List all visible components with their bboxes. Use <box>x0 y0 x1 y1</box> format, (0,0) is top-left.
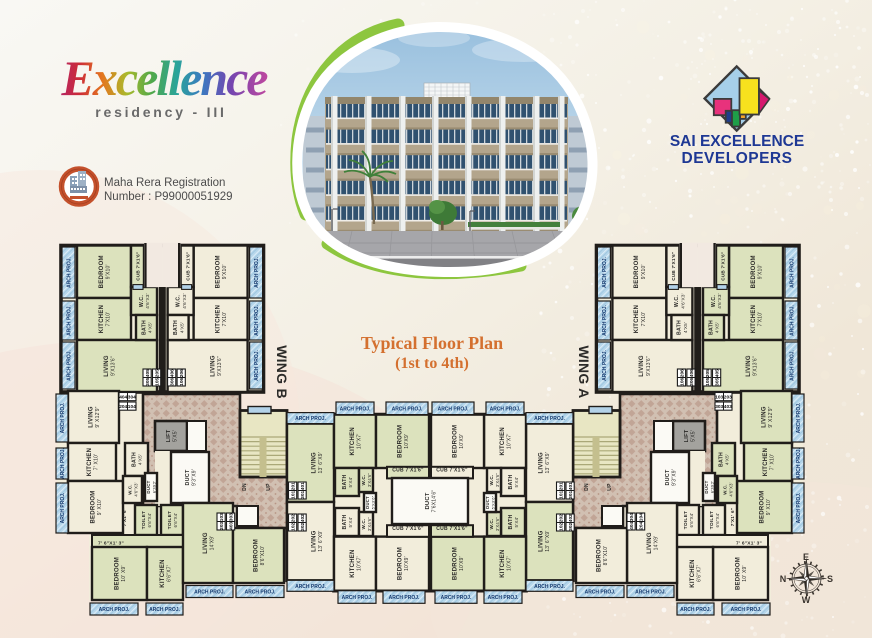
svg-text:405: 405 <box>145 369 151 377</box>
svg-text:KITCHEN: KITCHEN <box>350 549 356 577</box>
svg-text:4'X5': 4'X5' <box>683 322 688 333</box>
svg-text:102: 102 <box>559 522 565 530</box>
svg-text:Excellence: Excellence <box>61 50 269 106</box>
svg-text:W.C.: W.C. <box>722 484 727 495</box>
svg-text:9'X10': 9'X10' <box>641 264 647 279</box>
svg-text:W.C.: W.C. <box>489 475 494 486</box>
svg-text:204: 204 <box>639 521 645 529</box>
svg-text:KITCHEN: KITCHEN <box>634 305 640 333</box>
svg-text:ARCH PROJ.: ARCH PROJ. <box>488 595 519 601</box>
svg-text:4'6"X3': 4'6"X3' <box>133 482 138 496</box>
svg-text:BEDROOM: BEDROOM <box>215 255 221 288</box>
svg-text:ARCH PROJ.: ARCH PROJ. <box>99 607 130 613</box>
svg-text:102: 102 <box>291 522 297 530</box>
svg-text:ARCH PROJ.: ARCH PROJ. <box>585 590 616 596</box>
svg-text:10'X7': 10'X7' <box>507 556 513 571</box>
svg-text:ARCH PROJ.: ARCH PROJ. <box>295 416 326 422</box>
svg-text:9'X13'6": 9'X13'6" <box>217 356 223 376</box>
svg-text:401: 401 <box>568 482 574 490</box>
svg-text:9'X13'6": 9'X13'6" <box>646 356 652 376</box>
svg-text:7' X10': 7' X10' <box>770 454 776 470</box>
svg-text:10'X9': 10'X9' <box>404 556 410 571</box>
svg-text:404: 404 <box>629 521 635 529</box>
svg-text:ARCH PROJ.: ARCH PROJ. <box>389 595 420 601</box>
svg-text:402: 402 <box>300 514 306 522</box>
svg-text:ARCH PROJ.: ARCH PROJ. <box>790 349 796 380</box>
svg-text:9'X10': 9'X10' <box>106 264 112 279</box>
svg-text:ARCH PROJ.: ARCH PROJ. <box>392 406 423 412</box>
svg-text:10'X9': 10'X9' <box>459 434 465 449</box>
svg-text:8'6"X10': 8'6"X10' <box>260 546 266 566</box>
svg-text:LIVING: LIVING <box>104 355 110 377</box>
svg-text:BEDROOM: BEDROOM <box>759 490 765 523</box>
svg-text:3'X4'6": 3'X4'6" <box>495 473 500 488</box>
svg-text:TOILET: TOILET <box>167 511 173 529</box>
svg-text:BATH: BATH <box>508 474 514 489</box>
svg-text:204: 204 <box>119 404 127 410</box>
svg-text:W.C.: W.C. <box>175 295 181 308</box>
svg-text:CUB 7'X1'6": CUB 7'X1'6" <box>392 526 424 532</box>
svg-text:6'6"X7': 6'6"X7' <box>167 565 173 582</box>
svg-text:ARCH PROJ.: ARCH PROJ. <box>441 595 472 601</box>
svg-text:ARCH PROJ.: ARCH PROJ. <box>680 607 711 613</box>
svg-text:9' X10': 9' X10' <box>766 499 772 515</box>
svg-text:302: 302 <box>300 522 306 530</box>
svg-text:ARCH PROJ.: ARCH PROJ. <box>731 607 762 613</box>
svg-text:BEDROOM: BEDROOM <box>452 425 458 458</box>
svg-text:DUCT: DUCT <box>185 469 191 485</box>
svg-text:202: 202 <box>559 514 565 522</box>
svg-text:WING A: WING A <box>576 345 592 398</box>
svg-text:LIVING: LIVING <box>203 532 209 554</box>
svg-text:101: 101 <box>559 490 565 498</box>
svg-text:BEDROOM: BEDROOM <box>397 547 403 580</box>
svg-text:BATH: BATH <box>718 452 724 467</box>
svg-text:TOILET: TOILET <box>141 511 147 529</box>
svg-text:Typical Floor Plan: Typical Floor Plan <box>361 333 503 353</box>
svg-text:304: 304 <box>629 513 635 521</box>
svg-text:DUCT: DUCT <box>704 480 709 493</box>
svg-text:S: S <box>827 574 833 584</box>
svg-text:201: 201 <box>559 482 565 490</box>
svg-text:103: 103 <box>715 395 723 401</box>
svg-text:KITCHEN: KITCHEN <box>500 549 506 577</box>
svg-text:4'6"X3': 4'6"X3' <box>728 482 733 496</box>
svg-text:7'X10': 7'X10' <box>641 312 647 327</box>
svg-text:9'X13'6": 9'X13'6" <box>111 356 117 376</box>
svg-text:14'X9': 14'X9' <box>654 536 660 551</box>
svg-text:BATH: BATH <box>131 452 137 467</box>
svg-text:W.C.: W.C. <box>127 484 132 495</box>
svg-text:BEDROOM: BEDROOM <box>596 539 602 572</box>
svg-text:3'X4'6": 3'X4'6" <box>367 473 372 488</box>
svg-text:203: 203 <box>724 395 732 401</box>
svg-text:4'X5': 4'X5' <box>715 322 720 333</box>
svg-text:403: 403 <box>724 404 732 410</box>
svg-text:4'6"X3': 4'6"X3' <box>145 293 150 309</box>
svg-text:14'X9': 14'X9' <box>210 536 216 551</box>
svg-text:ARCH PROJ.: ARCH PROJ. <box>602 349 608 380</box>
svg-text:402: 402 <box>568 514 574 522</box>
svg-text:4'X5': 4'X5' <box>148 322 153 333</box>
svg-text:4'X5': 4'X5' <box>138 454 143 465</box>
svg-text:ARCH PROJ.: ARCH PROJ. <box>790 256 796 287</box>
svg-text:10"X7': 10"X7' <box>507 433 513 449</box>
svg-text:101: 101 <box>291 490 297 498</box>
svg-text:KITCHEN: KITCHEN <box>160 559 166 587</box>
svg-text:3'X4'6": 3'X4'6" <box>495 517 500 532</box>
svg-text:306: 306 <box>170 377 176 385</box>
svg-text:6'3X2': 6'3X2' <box>152 481 157 494</box>
svg-text:105: 105 <box>705 377 711 385</box>
svg-text:DUCT: DUCT <box>485 496 490 509</box>
svg-text:ARCH PROJ.: ARCH PROJ. <box>534 584 565 590</box>
svg-text:DUCT: DUCT <box>665 469 671 485</box>
svg-text:403: 403 <box>229 521 235 529</box>
svg-text:LIVING: LIVING <box>761 406 767 428</box>
svg-text:202: 202 <box>291 514 297 522</box>
svg-text:TOILET: TOILET <box>709 511 715 529</box>
svg-text:LIVING: LIVING <box>639 355 645 377</box>
svg-text:5'X5': 5'X5' <box>172 430 178 442</box>
svg-text:CUB 7'X1'6": CUB 7'X1'6" <box>436 467 468 473</box>
svg-text:7' 6"X1' 3": 7' 6"X1' 3" <box>98 541 124 547</box>
svg-text:201: 201 <box>291 482 297 490</box>
svg-text:ARCH PROJ.: ARCH PROJ. <box>796 402 802 433</box>
svg-text:7'X1' 6": 7'X1' 6" <box>122 508 127 526</box>
svg-text:W.C.: W.C. <box>489 519 494 530</box>
svg-text:CUB 7'X1'6": CUB 7'X1'6" <box>136 252 141 281</box>
svg-text:4'6"X3': 4'6"X3' <box>717 293 722 309</box>
svg-text:BATH: BATH <box>342 474 348 489</box>
svg-text:406: 406 <box>170 369 176 377</box>
svg-text:4'X5': 4'X5' <box>725 454 730 465</box>
svg-text:7'X10': 7'X10' <box>106 312 112 327</box>
svg-text:106: 106 <box>679 377 685 385</box>
svg-text:W: W <box>802 595 811 605</box>
svg-text:LIVING: LIVING <box>538 530 544 552</box>
svg-text:BEDROOM: BEDROOM <box>452 547 458 580</box>
svg-text:9' X12'9": 9' X12'9" <box>95 406 101 427</box>
svg-text:LIVING: LIVING <box>88 406 94 428</box>
svg-text:LIVING: LIVING <box>538 452 544 474</box>
svg-text:13' 6"X9': 13' 6"X9' <box>545 530 551 551</box>
svg-text:DUCT: DUCT <box>425 492 431 509</box>
svg-text:7'6X14'6": 7'6X14'6" <box>432 490 438 513</box>
svg-text:5'X3'6": 5'X3'6" <box>371 495 376 509</box>
svg-text:6'6"X4': 6'6"X4' <box>689 513 694 528</box>
svg-text:406: 406 <box>689 369 695 377</box>
svg-text:305: 305 <box>145 377 151 385</box>
svg-text:ARCH PROJ.: ARCH PROJ. <box>254 304 260 335</box>
svg-text:9' X12'9": 9' X12'9" <box>768 406 774 427</box>
svg-text:5'X4': 5'X4' <box>514 517 519 528</box>
svg-text:103: 103 <box>219 513 225 521</box>
svg-text:LIFT: LIFT <box>166 429 172 442</box>
svg-text:BEDROOM: BEDROOM <box>99 255 105 288</box>
svg-text:KITCHEN: KITCHEN <box>763 448 769 476</box>
svg-text:104: 104 <box>128 404 136 410</box>
svg-text:7' 6"X1' 3": 7' 6"X1' 3" <box>736 541 762 547</box>
svg-text:ARCH PROJ.: ARCH PROJ. <box>67 256 73 287</box>
svg-text:WING B: WING B <box>274 345 290 399</box>
svg-text:BEDROOM: BEDROOM <box>397 425 403 458</box>
svg-text:6'3X2': 6'3X2' <box>710 481 715 494</box>
svg-text:ARCH PROJ.: ARCH PROJ. <box>60 402 66 433</box>
svg-text:10'X9': 10'X9' <box>404 434 410 449</box>
svg-text:4'6"X3': 4'6"X3' <box>681 293 686 309</box>
svg-text:6'6"X7': 6'6"X7' <box>697 565 703 582</box>
svg-text:W.C.: W.C. <box>674 295 680 308</box>
svg-text:303: 303 <box>715 404 723 410</box>
svg-text:13' 6"X9': 13' 6"X9' <box>318 452 324 473</box>
svg-text:ARCH PROJ.: ARCH PROJ. <box>635 590 666 596</box>
svg-text:205: 205 <box>155 369 161 377</box>
svg-text:LIVING: LIVING <box>647 532 653 554</box>
svg-text:7'X10': 7'X10' <box>222 312 228 327</box>
svg-text:405: 405 <box>715 369 721 377</box>
svg-text:KITCHEN: KITCHEN <box>99 305 105 333</box>
svg-text:LIVING: LIVING <box>311 530 317 552</box>
svg-text:UP: UP <box>607 483 613 491</box>
svg-text:LIFT: LIFT <box>684 429 690 442</box>
svg-text:206: 206 <box>679 369 685 377</box>
svg-text:ARCH PROJ.: ARCH PROJ. <box>254 256 260 287</box>
svg-text:301: 301 <box>568 490 574 498</box>
svg-text:LIVING: LIVING <box>311 452 317 474</box>
svg-text:LIVING: LIVING <box>210 355 216 377</box>
svg-text:ARCH PROJ.: ARCH PROJ. <box>295 584 326 590</box>
svg-text:KITCHEN: KITCHEN <box>500 427 506 455</box>
svg-text:ARCH PROJ.: ARCH PROJ. <box>796 447 802 478</box>
svg-text:Number : P99000051929: Number : P99000051929 <box>104 191 233 203</box>
svg-text:ARCH PROJ.: ARCH PROJ. <box>194 590 225 596</box>
svg-text:ARCH PROJ.: ARCH PROJ. <box>790 304 796 335</box>
svg-text:3'X4'6": 3'X4'6" <box>367 517 372 532</box>
svg-text:9'3"X9': 9'3"X9' <box>672 469 678 486</box>
svg-text:306: 306 <box>689 377 695 385</box>
svg-text:Maha Rera Registration: Maha Rera Registration <box>104 177 225 189</box>
svg-text:LIVING: LIVING <box>746 355 752 377</box>
svg-text:KITCHEN: KITCHEN <box>350 427 356 455</box>
svg-text:301: 301 <box>300 490 306 498</box>
svg-text:10'X9': 10'X9' <box>459 556 465 571</box>
svg-text:404: 404 <box>119 395 127 401</box>
svg-text:4'X5': 4'X5' <box>179 322 184 333</box>
svg-text:SAI EXCELLENCE: SAI EXCELLENCE <box>670 133 804 150</box>
svg-text:CUB 7'X1'6": CUB 7'X1'6" <box>436 526 468 532</box>
svg-text:10' X9': 10' X9' <box>121 565 127 581</box>
svg-text:DUCT: DUCT <box>365 496 370 509</box>
svg-text:ARCH PROJ.: ARCH PROJ. <box>602 256 608 287</box>
svg-text:ARCH PROJ.: ARCH PROJ. <box>254 349 260 380</box>
svg-text:W.C.: W.C. <box>139 295 145 308</box>
svg-text:BEDROOM: BEDROOM <box>90 490 96 523</box>
svg-text:DN: DN <box>242 483 248 491</box>
svg-text:ARCH PROJ.: ARCH PROJ. <box>245 590 276 596</box>
svg-text:ARCH PROJ.: ARCH PROJ. <box>342 595 373 601</box>
svg-text:ARCH PROJ.: ARCH PROJ. <box>340 406 371 412</box>
svg-text:ARCH PROJ.: ARCH PROJ. <box>490 406 521 412</box>
svg-text:BATH: BATH <box>342 514 348 529</box>
svg-text:ARCH PROJ.: ARCH PROJ. <box>60 447 66 478</box>
svg-text:205: 205 <box>705 369 711 377</box>
svg-text:13' 6"X9': 13' 6"X9' <box>318 530 324 551</box>
svg-text:ARCH PROJ.: ARCH PROJ. <box>67 304 73 335</box>
svg-text:KITCHEN: KITCHEN <box>751 305 757 333</box>
svg-text:CUB 7'X1'6": CUB 7'X1'6" <box>721 252 726 281</box>
svg-text:CUB 7'X1'6": CUB 7'X1'6" <box>392 467 424 473</box>
svg-text:DUCT: DUCT <box>146 480 151 493</box>
svg-text:105: 105 <box>155 377 161 385</box>
svg-text:BATH: BATH <box>173 320 179 335</box>
svg-text:5'X4': 5'X4' <box>348 517 353 528</box>
svg-text:BATH: BATH <box>141 320 147 335</box>
svg-text:BEDROOM: BEDROOM <box>114 557 120 590</box>
svg-text:BATH: BATH <box>677 320 683 335</box>
svg-text:305: 305 <box>715 377 721 385</box>
svg-text:9' X10': 9' X10' <box>97 499 103 515</box>
svg-text:6'6"X4': 6'6"X4' <box>173 513 178 528</box>
svg-text:W.C.: W.C. <box>361 475 366 486</box>
svg-text:UP: UP <box>266 483 272 491</box>
svg-text:203: 203 <box>219 521 225 529</box>
svg-text:5'X3'6": 5'X3'6" <box>491 495 496 509</box>
svg-text:5'X4': 5'X4' <box>348 477 353 488</box>
svg-text:ARCH PROJ.: ARCH PROJ. <box>796 492 802 523</box>
svg-text:W.C.: W.C. <box>361 519 366 530</box>
svg-text:5'X4': 5'X4' <box>514 477 519 488</box>
svg-text:6'6"X4': 6'6"X4' <box>715 513 720 528</box>
svg-text:9'X10': 9'X10' <box>758 264 764 279</box>
svg-text:KITCHEN: KITCHEN <box>87 448 93 476</box>
svg-text:302: 302 <box>568 522 574 530</box>
svg-text:DN: DN <box>584 483 590 491</box>
svg-text:BEDROOM: BEDROOM <box>253 539 259 572</box>
svg-text:9'X10': 9'X10' <box>222 264 228 279</box>
svg-text:(1st to 4th): (1st to 4th) <box>395 355 469 372</box>
svg-text:7'X10': 7'X10' <box>758 312 764 327</box>
svg-text:ARCH PROJ.: ARCH PROJ. <box>534 416 565 422</box>
svg-text:ARCH PROJ.: ARCH PROJ. <box>602 304 608 335</box>
svg-text:CUB 7'X1'6": CUB 7'X1'6" <box>671 252 676 281</box>
svg-text:TOILET: TOILET <box>683 511 689 529</box>
svg-text:CUB 7'X1'6": CUB 7'X1'6" <box>185 252 190 281</box>
svg-text:206: 206 <box>179 369 185 377</box>
svg-text:7'X1' 6": 7'X1' 6" <box>730 508 735 526</box>
svg-text:401: 401 <box>300 482 306 490</box>
svg-text:KITCHEN: KITCHEN <box>690 559 696 587</box>
svg-text:303: 303 <box>229 513 235 521</box>
svg-text:BEDROOM: BEDROOM <box>634 255 640 288</box>
svg-text:9'3"X9': 9'3"X9' <box>192 469 198 486</box>
svg-text:residency - III: residency - III <box>95 104 226 120</box>
svg-text:BEDROOM: BEDROOM <box>735 557 741 590</box>
svg-text:BATH: BATH <box>708 320 714 335</box>
svg-text:4'6"X3': 4'6"X3' <box>182 293 187 309</box>
svg-text:BEDROOM: BEDROOM <box>751 255 757 288</box>
svg-text:304: 304 <box>128 395 136 401</box>
svg-text:5'X5': 5'X5' <box>690 430 696 442</box>
svg-text:7' X10': 7' X10' <box>94 454 100 470</box>
svg-text:E: E <box>803 552 809 562</box>
svg-text:9'X13'6": 9'X13'6" <box>753 356 759 376</box>
svg-text:BATH: BATH <box>508 514 514 529</box>
svg-text:13' 6"X9': 13' 6"X9' <box>545 452 551 473</box>
svg-text:W.C.: W.C. <box>711 295 717 308</box>
svg-text:ARCH PROJ.: ARCH PROJ. <box>149 607 180 613</box>
svg-text:N: N <box>780 574 787 584</box>
svg-text:10'X7': 10'X7' <box>357 556 363 571</box>
svg-text:10"X7': 10"X7' <box>357 433 363 449</box>
svg-text:DEVELOPERS: DEVELOPERS <box>682 150 793 167</box>
svg-text:ARCH PROJ.: ARCH PROJ. <box>60 492 66 523</box>
svg-text:8'6"X10': 8'6"X10' <box>603 546 609 566</box>
svg-text:6'6"X4': 6'6"X4' <box>147 513 152 528</box>
svg-text:104: 104 <box>639 513 645 521</box>
svg-text:10' X9': 10' X9' <box>742 565 748 581</box>
svg-text:106: 106 <box>179 377 185 385</box>
svg-text:KITCHEN: KITCHEN <box>215 305 221 333</box>
svg-text:ARCH PROJ.: ARCH PROJ. <box>438 406 469 412</box>
svg-text:ARCH PROJ.: ARCH PROJ. <box>67 349 73 380</box>
